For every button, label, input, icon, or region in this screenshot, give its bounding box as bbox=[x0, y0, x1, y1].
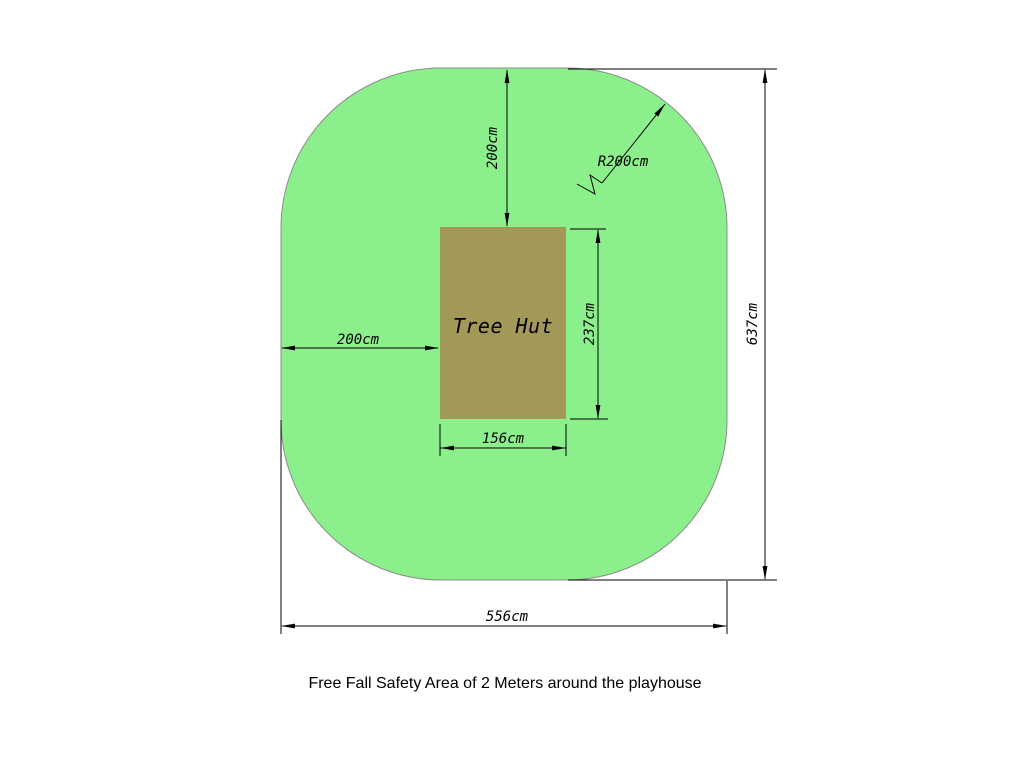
arrowhead-up-icon bbox=[763, 69, 768, 83]
drawing-canvas: Tree Hut 200cm R200cm 200cm 156cm 237c bbox=[0, 0, 1024, 768]
dim-left-offset-label: 200cm bbox=[337, 332, 380, 348]
arrowhead-right-icon bbox=[713, 624, 727, 629]
dim-hut-width-label: 156cm bbox=[482, 431, 525, 447]
dim-corner-radius-label: R200cm bbox=[598, 154, 649, 170]
dim-top-offset-label: 200cm bbox=[485, 126, 501, 169]
arrowhead-left-icon bbox=[281, 624, 295, 629]
dim-hut-height-label: 237cm bbox=[582, 302, 598, 345]
arrowhead-down-icon bbox=[763, 566, 768, 580]
diagram-svg: Tree Hut 200cm R200cm 200cm 156cm 237c bbox=[0, 0, 1024, 768]
dim-overall-height-label: 637cm bbox=[745, 302, 761, 345]
dim-overall-width-label: 556cm bbox=[486, 609, 529, 625]
caption-text: Free Fall Safety Area of 2 Meters around… bbox=[308, 675, 701, 692]
tree-hut-label: Tree Hut bbox=[453, 314, 553, 338]
